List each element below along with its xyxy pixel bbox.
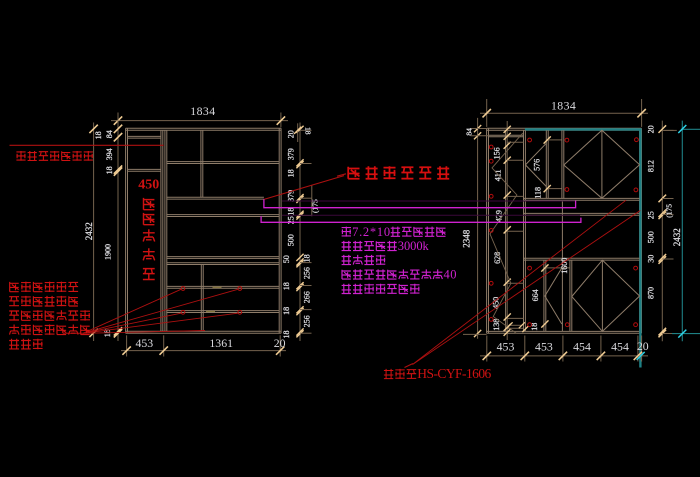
svg-text:20: 20	[647, 125, 656, 133]
svg-text:156: 156	[493, 147, 502, 159]
svg-text:266: 266	[303, 291, 312, 303]
svg-text:20: 20	[637, 339, 649, 353]
svg-text:18: 18	[282, 307, 291, 315]
svg-text:628: 628	[493, 252, 502, 264]
svg-text:2432: 2432	[672, 228, 682, 246]
svg-text:84: 84	[464, 128, 473, 136]
svg-text:450: 450	[138, 178, 159, 193]
svg-text:453: 453	[535, 339, 553, 353]
svg-text:18: 18	[282, 282, 291, 290]
svg-text:453: 453	[135, 336, 153, 350]
svg-text:18: 18	[94, 131, 103, 139]
svg-text:20: 20	[286, 130, 295, 138]
svg-text:20: 20	[274, 336, 286, 350]
svg-text:576: 576	[533, 159, 542, 171]
svg-text:453: 453	[497, 339, 515, 353]
svg-text:118: 118	[534, 187, 543, 199]
svg-text:379: 379	[286, 148, 295, 160]
svg-text:25: 25	[286, 216, 295, 224]
svg-text:454: 454	[611, 339, 629, 353]
svg-text:500: 500	[286, 234, 295, 246]
svg-text:18: 18	[286, 169, 295, 177]
svg-text:1834: 1834	[190, 104, 215, 118]
svg-text:1361: 1361	[209, 336, 233, 350]
svg-text:1834: 1834	[551, 99, 576, 113]
svg-text:454: 454	[573, 339, 591, 353]
svg-text:664: 664	[531, 289, 540, 301]
svg-text:2348: 2348	[462, 229, 472, 248]
svg-text:18: 18	[105, 166, 114, 174]
svg-text:(175: (175	[664, 204, 673, 218]
svg-text:HS-CYF-1606: HS-CYF-1606	[417, 366, 491, 381]
svg-text:18: 18	[303, 254, 312, 262]
svg-text:7.2*10: 7.2*10	[352, 225, 390, 239]
svg-text:500: 500	[647, 231, 656, 243]
svg-text:870: 870	[647, 287, 656, 299]
svg-text:84: 84	[105, 130, 114, 138]
svg-text:3000k: 3000k	[398, 239, 430, 253]
svg-text:50: 50	[282, 255, 291, 263]
svg-text:256: 256	[303, 315, 312, 327]
svg-text:256: 256	[303, 267, 312, 279]
svg-text:812: 812	[647, 160, 656, 172]
svg-text:30: 30	[647, 255, 656, 263]
svg-text:40: 40	[444, 268, 457, 282]
svg-text:18: 18	[286, 208, 295, 216]
svg-text:1900: 1900	[104, 244, 113, 260]
svg-text:18: 18	[303, 127, 312, 135]
svg-text:2432: 2432	[84, 222, 94, 240]
svg-text:25: 25	[647, 211, 656, 219]
svg-text:394: 394	[105, 148, 114, 160]
